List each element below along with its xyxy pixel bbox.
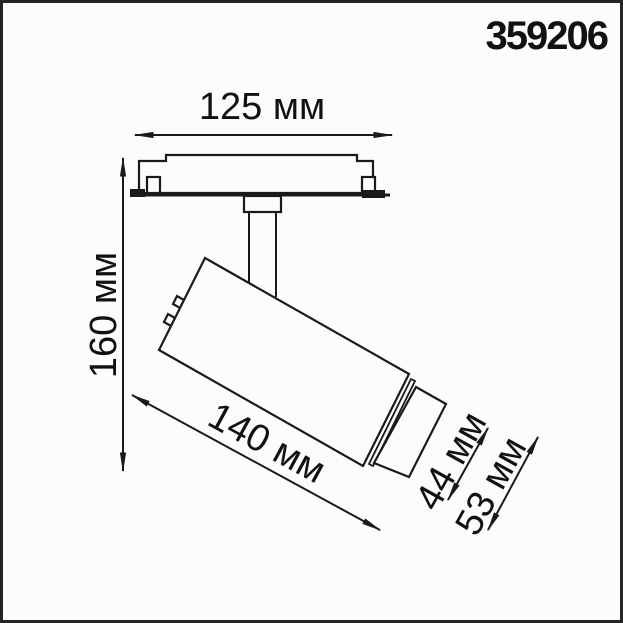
adapter-housing bbox=[139, 155, 373, 193]
dim-height-label: 160 мм bbox=[83, 252, 125, 378]
mount-stem bbox=[244, 196, 281, 297]
dim-track-width-label: 125 мм bbox=[199, 86, 325, 128]
adapter-flange-end-right bbox=[362, 190, 385, 198]
product-article: 359206 bbox=[486, 14, 608, 58]
adapter-clip-left bbox=[147, 177, 160, 193]
adapter-flange-end-left bbox=[130, 189, 145, 197]
track-adapter bbox=[130, 155, 390, 297]
spotlight-dimension-diagram: 125 мм 160 мм 140 мм 44 мм 53 мм 359206 bbox=[0, 0, 623, 623]
technical-drawing-page: 125 мм 160 мм 140 мм 44 мм 53 мм 359206 bbox=[0, 0, 623, 623]
